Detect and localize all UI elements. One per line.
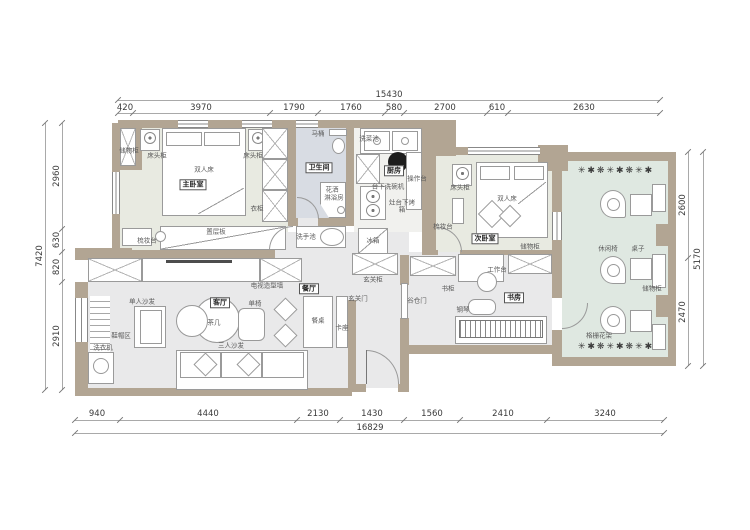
label-small-table: 桌子 — [632, 245, 645, 252]
dim-line-bottom-total — [75, 433, 664, 434]
label-double-bed: 双人床 — [497, 195, 517, 202]
room-label-second-bedroom: 次卧室 — [472, 233, 499, 244]
dim-top-7: 2630 — [573, 103, 595, 113]
label-storage-cabinet: 储物柜 — [119, 147, 139, 154]
label-washing-machine: 洗衣机 — [93, 344, 113, 351]
stool — [468, 299, 496, 315]
wall-segment — [562, 152, 676, 161]
floor-plan: ✳✱❋✳✱❋✳✱ ✳✱❋✳✱❋✳✱ 主卧室 卫生间 厨房 次卧室 书房 客厅 餐… — [0, 0, 750, 530]
label-leisure-chair: 休闲椅 — [598, 245, 618, 252]
room-label-bathroom: 卫生间 — [306, 162, 333, 173]
chair-cushion — [607, 264, 620, 277]
label-counter-top: 操作台 — [407, 175, 427, 182]
entry-door-leaf — [366, 350, 367, 384]
wall-segment — [348, 300, 356, 388]
dressing-table — [452, 198, 464, 224]
dim-line-left-outer — [45, 123, 46, 390]
label-hand-basin: 洗手池 — [296, 233, 316, 240]
label-three-seat-sofa: 三人沙发 — [218, 342, 244, 349]
dim-line-bottom-segments — [75, 420, 664, 421]
window — [552, 212, 562, 240]
dim-right-total: 5170 — [693, 248, 703, 270]
dim-tick — [42, 387, 48, 393]
wall-pillar — [656, 295, 668, 317]
burner-icon — [366, 204, 380, 217]
plant-row: ✳✱❋✳✱❋✳✱ — [578, 166, 654, 176]
dim-top-0: 420 — [117, 103, 133, 113]
coffee-table-small — [176, 305, 208, 337]
dim-bottom-total: 16829 — [356, 423, 383, 433]
label-shoe-hat-area: 鞋帽区 — [111, 332, 131, 339]
dim-bottom-5: 2410 — [492, 409, 514, 419]
wall-segment — [400, 318, 409, 345]
label-oven: 灶台下烤箱 — [388, 200, 416, 215]
blanket-fold — [198, 188, 244, 214]
dim-left-2: 820 — [52, 259, 62, 275]
dim-line-right-inner — [688, 152, 689, 366]
dim-top-5: 2700 — [434, 103, 456, 113]
label-fridge: 冰箱 — [367, 237, 380, 244]
wall-segment — [668, 152, 676, 366]
wall-segment — [552, 240, 562, 298]
sofa-cushion — [262, 352, 304, 378]
dim-bottom-6: 3240 — [594, 409, 616, 419]
dim-tick — [685, 363, 691, 369]
label-flower-rack: 格栅花架 — [586, 332, 612, 339]
dim-left-0: 2960 — [52, 165, 62, 187]
tv-wall-cabinet — [260, 258, 302, 282]
wall-segment — [288, 123, 296, 226]
balcony-cabinet — [652, 184, 666, 212]
dim-top-3: 1760 — [340, 103, 362, 113]
wall-segment — [346, 123, 354, 226]
washer-door — [93, 358, 109, 374]
wall-segment — [288, 218, 298, 226]
label-double-bed: 双人床 — [194, 166, 214, 173]
window — [468, 147, 540, 155]
chair-cushion — [607, 198, 620, 211]
armchair-seat — [140, 310, 162, 344]
booth-bench — [336, 296, 348, 348]
shower-head-icon — [337, 206, 345, 214]
hand-basin — [320, 228, 344, 246]
label-entry-door: 玄关门 — [348, 295, 368, 302]
dim-line-left-inner — [62, 123, 63, 390]
dim-left-1: 630 — [52, 232, 62, 248]
dim-tick — [661, 430, 667, 436]
label-veg-sink: 洗菜池 — [359, 135, 379, 142]
dim-tick — [657, 110, 663, 116]
label-wardrobe: 衣柜 — [251, 205, 264, 212]
room-label-living-room: 客厅 — [210, 297, 230, 308]
desk-chair — [477, 272, 497, 292]
dim-left-3: 2910 — [52, 325, 62, 347]
room-label-kitchen: 厨房 — [384, 165, 404, 176]
pillow — [514, 166, 544, 180]
wall-segment — [408, 345, 556, 354]
dim-top-1: 3970 — [190, 103, 212, 113]
wardrobe — [262, 190, 288, 222]
window — [178, 120, 208, 128]
wall-segment — [400, 255, 409, 285]
window — [242, 120, 272, 128]
wall-segment — [398, 384, 408, 392]
dim-tick — [657, 97, 663, 103]
dim-tick — [661, 417, 667, 423]
wall-segment — [552, 357, 676, 366]
label-nightstand: 床头柜 — [147, 152, 167, 159]
label-entry-cabinet: 玄关柜 — [363, 276, 383, 283]
piano-keyboard — [459, 320, 543, 338]
wardrobe — [262, 128, 288, 159]
dim-line-top-total — [118, 100, 660, 101]
side-table — [630, 310, 652, 332]
wall-segment — [118, 120, 430, 128]
window — [112, 172, 120, 214]
balcony-cabinet — [652, 254, 666, 288]
dim-line-top-segments — [118, 113, 660, 114]
dim-top-total: 15430 — [375, 90, 402, 100]
room-label-dining-room: 餐厅 — [299, 283, 319, 294]
side-table — [630, 194, 652, 216]
label-dressing-table: 梳妆台 — [137, 237, 157, 244]
tv-wall-cabinet — [88, 258, 142, 282]
wardrobe — [262, 159, 288, 190]
label-work-top: 工作台 — [487, 266, 507, 273]
label-nightstand: 床头柜 — [243, 152, 263, 159]
label-piano: 钢琴 — [457, 306, 470, 313]
pillow — [166, 132, 202, 146]
label-storage-cabinet: 储物柜 — [642, 285, 662, 292]
dim-bottom-4: 1560 — [421, 409, 443, 419]
room-label-study: 书房 — [504, 292, 524, 303]
dim-line-right-outer — [703, 152, 704, 366]
label-nightstand: 床头柜 — [450, 184, 470, 191]
dim-bottom-0: 940 — [89, 409, 105, 419]
dim-top-4: 580 — [386, 103, 402, 113]
label-storage-cabinet: 储物柜 — [520, 243, 540, 250]
dim-left-total: 7420 — [35, 245, 45, 267]
dim-bottom-1: 4440 — [197, 409, 219, 419]
label-barn-door: 谷仓门 — [407, 297, 427, 304]
wall-segment — [552, 152, 562, 212]
leisure-chair — [600, 306, 626, 334]
burner-icon — [366, 190, 380, 203]
dim-bottom-3: 1430 — [361, 409, 383, 419]
label-tea-table: 茶几 — [208, 319, 221, 326]
pillow — [480, 166, 510, 180]
dim-right-0: 2600 — [678, 194, 688, 216]
leisure-chair — [600, 256, 626, 284]
drain-icon — [401, 137, 409, 145]
toilet-tank — [329, 129, 347, 136]
blanket-fold — [518, 182, 546, 204]
pillow — [204, 132, 240, 146]
label-dining-table: 餐桌 — [312, 317, 325, 324]
leisure-chair — [600, 190, 626, 218]
wall-segment — [428, 155, 436, 255]
label-bookcase: 书柜 — [442, 285, 455, 292]
window — [75, 298, 88, 342]
label-tv-feature-wall: 电视造型墙 — [251, 282, 284, 289]
wall-segment — [112, 250, 275, 258]
label-dressing-table: 梳妆台 — [433, 223, 453, 230]
dishwasher-cabinet — [356, 154, 380, 184]
room-label-master-bedroom: 主卧室 — [180, 179, 207, 190]
tv-screen — [166, 260, 232, 263]
chair-cushion — [607, 314, 620, 327]
window — [296, 120, 318, 128]
label-booth-seat: 卡座 — [336, 324, 349, 331]
storage-cabinet — [508, 254, 552, 274]
label-single-sofa: 单人沙发 — [129, 298, 155, 305]
plant-row: ✳✱❋✳✱❋✳✱ — [578, 342, 654, 352]
dim-tick — [59, 387, 65, 393]
single-chair — [238, 308, 265, 341]
wall-pillar — [656, 224, 668, 246]
lamp-icon — [144, 132, 156, 144]
label-shower-room: 淋浴房 — [324, 194, 344, 201]
label-single-chair: 单椅 — [249, 300, 262, 307]
side-table — [630, 258, 652, 280]
lamp-icon — [456, 167, 469, 180]
dim-top-2: 1790 — [283, 103, 305, 113]
toilet-bowl — [332, 138, 345, 154]
bookcase-cabinet — [410, 256, 456, 276]
dim-top-6: 610 — [489, 103, 505, 113]
entry-cabinet — [352, 253, 398, 275]
dim-tick — [700, 363, 706, 369]
dim-right-1: 2470 — [678, 301, 688, 323]
dim-bottom-2: 2130 — [307, 409, 329, 419]
label-toilet: 马桶 — [312, 130, 325, 137]
label-shelf-board: 置层板 — [206, 228, 226, 235]
label-dishwasher: 台下洗碗机 — [372, 183, 405, 190]
